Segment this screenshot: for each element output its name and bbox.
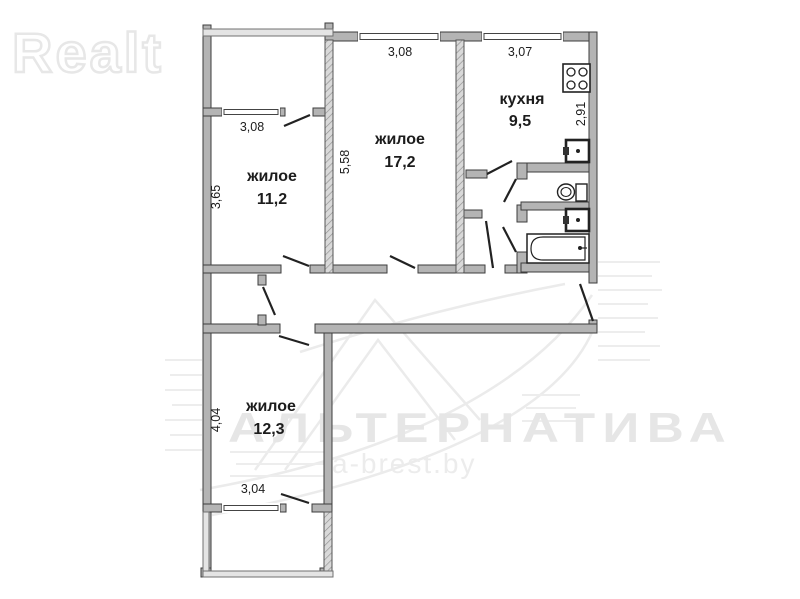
- wall-segment: [310, 265, 387, 273]
- dim-room2-height: 5,58: [338, 150, 352, 174]
- wall-segment: [325, 40, 333, 273]
- wall-segment: [280, 108, 285, 116]
- dim-room2-width: 3,08: [388, 45, 412, 59]
- wall-segment: [418, 265, 485, 273]
- bath-sink-icon: [563, 209, 589, 231]
- room3-label: жилое: [245, 398, 296, 415]
- window: [358, 31, 440, 42]
- wall-segment: [517, 163, 527, 179]
- wall-segment: [258, 315, 266, 325]
- watermark-agency: АЛЬТЕРНАТИВА: [228, 404, 733, 451]
- window: [482, 31, 563, 42]
- room2-area: 17,2: [384, 154, 415, 171]
- wall-segment: [464, 210, 482, 218]
- wall-segment: [324, 512, 332, 577]
- wall-segment: [312, 504, 332, 512]
- balcony-rail: [203, 571, 333, 577]
- room1-area: 11,2: [257, 191, 287, 208]
- wall-segment: [517, 163, 589, 172]
- room3-area: 12,3: [253, 421, 284, 438]
- balcony-rail: [203, 512, 209, 577]
- bathtub-icon: [527, 234, 589, 263]
- dim-kitchen-width: 3,07: [508, 45, 532, 59]
- wall-segment: [203, 265, 281, 273]
- wall-segment: [203, 324, 280, 333]
- dim-kitchen-height: 2,91: [574, 102, 588, 126]
- window: [222, 107, 280, 117]
- kitchen-sink-icon: [563, 140, 589, 162]
- dim-room3-width: 3,04: [241, 482, 265, 496]
- wall-segment: [203, 108, 222, 116]
- wall-segment: [521, 263, 589, 272]
- stove-icon: [563, 64, 590, 92]
- room2-label: жилое: [374, 131, 425, 148]
- kitchen-area: 9,5: [509, 113, 531, 130]
- wall-segment: [315, 324, 597, 333]
- wall-segment: [324, 333, 332, 513]
- watermark-site: a-brest.by: [332, 448, 477, 479]
- balcony-rail: [203, 29, 333, 36]
- background: [0, 0, 800, 599]
- floorplan-image: Realt: [0, 0, 800, 599]
- floorplan-svg: Realt: [0, 0, 800, 599]
- kitchen-label: кухня: [500, 91, 545, 108]
- wall-segment: [258, 275, 266, 285]
- window: [222, 503, 280, 513]
- dim-room3-height: 4,04: [209, 408, 223, 432]
- watermark-realt: Realt: [12, 21, 164, 84]
- wall-segment: [456, 40, 464, 273]
- dim-room1-width: 3,08: [240, 120, 264, 134]
- wall-segment: [203, 504, 222, 512]
- room1-label: жилое: [246, 168, 297, 185]
- wall-segment: [466, 170, 487, 178]
- dim-room1-height: 3,65: [209, 185, 223, 209]
- wall-segment: [280, 504, 286, 512]
